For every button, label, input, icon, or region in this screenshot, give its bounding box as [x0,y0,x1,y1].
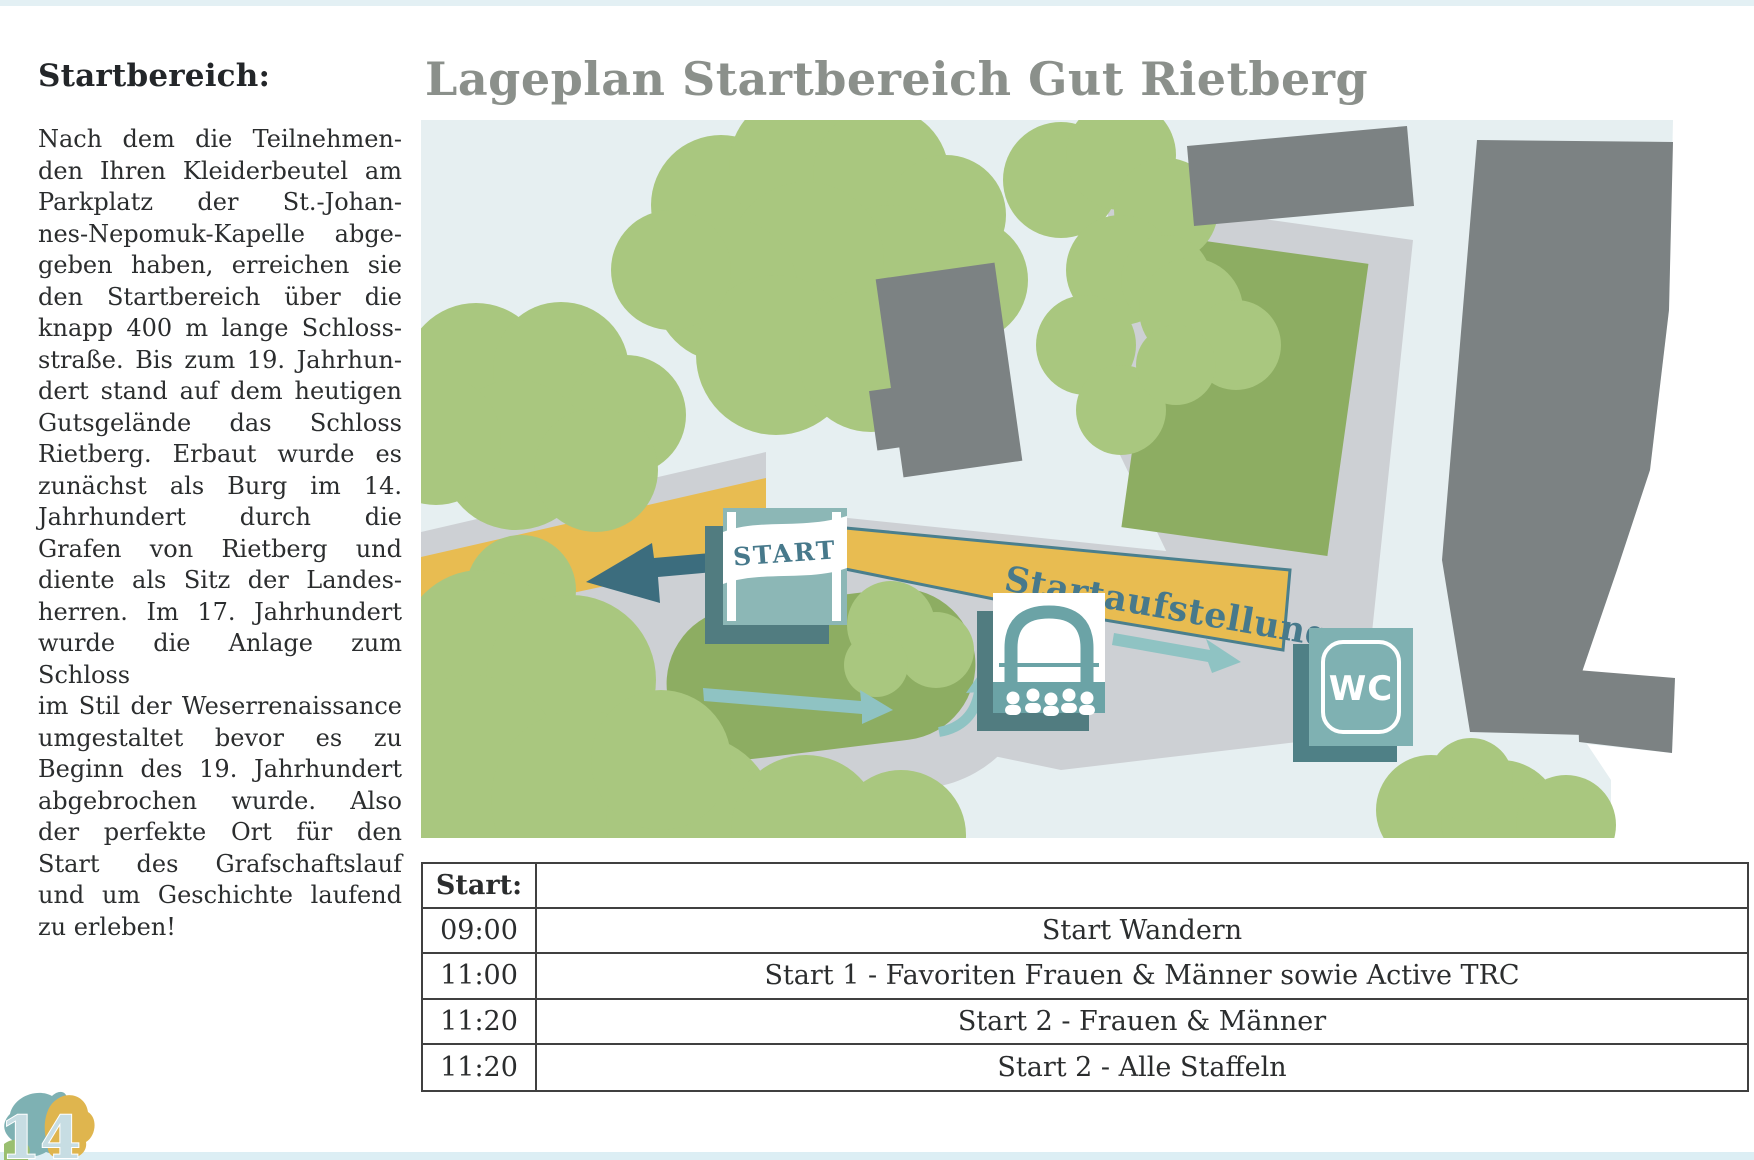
body-line: umgestaltet bevor es zu [38,723,402,755]
event-cell: Start 1 - Favoriten Frauen & Männer sowi… [537,954,1747,999]
event-cell: Start Wandern [537,909,1747,954]
page-top-edge [0,0,1754,6]
time-cell: 11:00 [423,954,537,999]
body-line: der perfekte Ort für den [38,817,402,849]
start-arch-icon [977,593,1105,731]
body-line: Rietberg. Erbaut wurde es [38,439,402,471]
body-line: Parkplatz der St.-Johan- [38,187,402,219]
section-heading: Startbereich: [38,58,402,94]
time-cell: 11:20 [423,1045,537,1090]
body-line: dert stand auf dem heutigen [38,376,402,408]
body-line: knapp 400 m lange Schloss- [38,313,402,345]
body-line: Grafen von Rietberg und [38,534,402,566]
site-map-illustration: Startaufstellung START [421,120,1754,838]
body-line: Start des Grafschaftslauf [38,849,402,881]
body-line: herren. Im 17. Jahrhundert [38,597,402,629]
left-column: Startbereich: Nach dem die Teilnehmen-de… [38,58,402,943]
body-line: den Startbereich über die [38,282,402,314]
body-line: Beginn des 19. Jahrhundert [38,754,402,786]
event-cell: Start 2 - Frauen & Männer [537,1000,1747,1045]
start-sign-icon: START [705,508,847,644]
body-line: und um Geschichte laufend [38,880,402,912]
table-header-empty [537,864,1747,909]
body-line: geben haben, erreichen sie [38,250,402,282]
body-line: wurde die Anlage zum Schloss [38,628,402,691]
body-line: den Ihren Kleiderbeutel am [38,156,402,188]
body-line: diente als Sitz der Landes- [38,565,402,597]
map-title: Lageplan Startbereich Gut Rietberg [425,52,1725,106]
time-cell: 11:20 [423,1000,537,1045]
body-text: Nach dem die Teilnehmen-den Ihren Kleide… [38,124,402,943]
body-line: zu erleben! [38,912,402,944]
body-line: Nach dem die Teilnehmen- [38,124,402,156]
page-number-emblem: 14 [0,1082,110,1160]
body-line: zunächst als Burg im 14. [38,471,402,503]
page-number: 14 [0,1104,81,1160]
event-cell: Start 2 - Alle Staffeln [537,1045,1747,1090]
body-line: straße. Bis zum 19. Jahrhun- [38,345,402,377]
body-line: abgebrochen wurde. Also [38,786,402,818]
page-bottom-edge [0,1152,1754,1160]
body-line: im Stil der Weserrenaissance [38,691,402,723]
body-line: nes-Nepomuk-Kapelle abge- [38,219,402,251]
body-line: Jahrhundert durch die [38,502,402,534]
manor-building [1442,140,1673,735]
start-schedule-table: Start: 09:00 Start Wandern 11:00 Start 1… [421,862,1749,1092]
time-cell: 09:00 [423,909,537,954]
wc-icon: WC [1293,628,1413,762]
body-line: Gutsgelände das Schloss [38,408,402,440]
site-map: Startaufstellung START [421,120,1754,838]
table-header: Start: [423,864,537,909]
wc-label: WC [1329,669,1393,709]
